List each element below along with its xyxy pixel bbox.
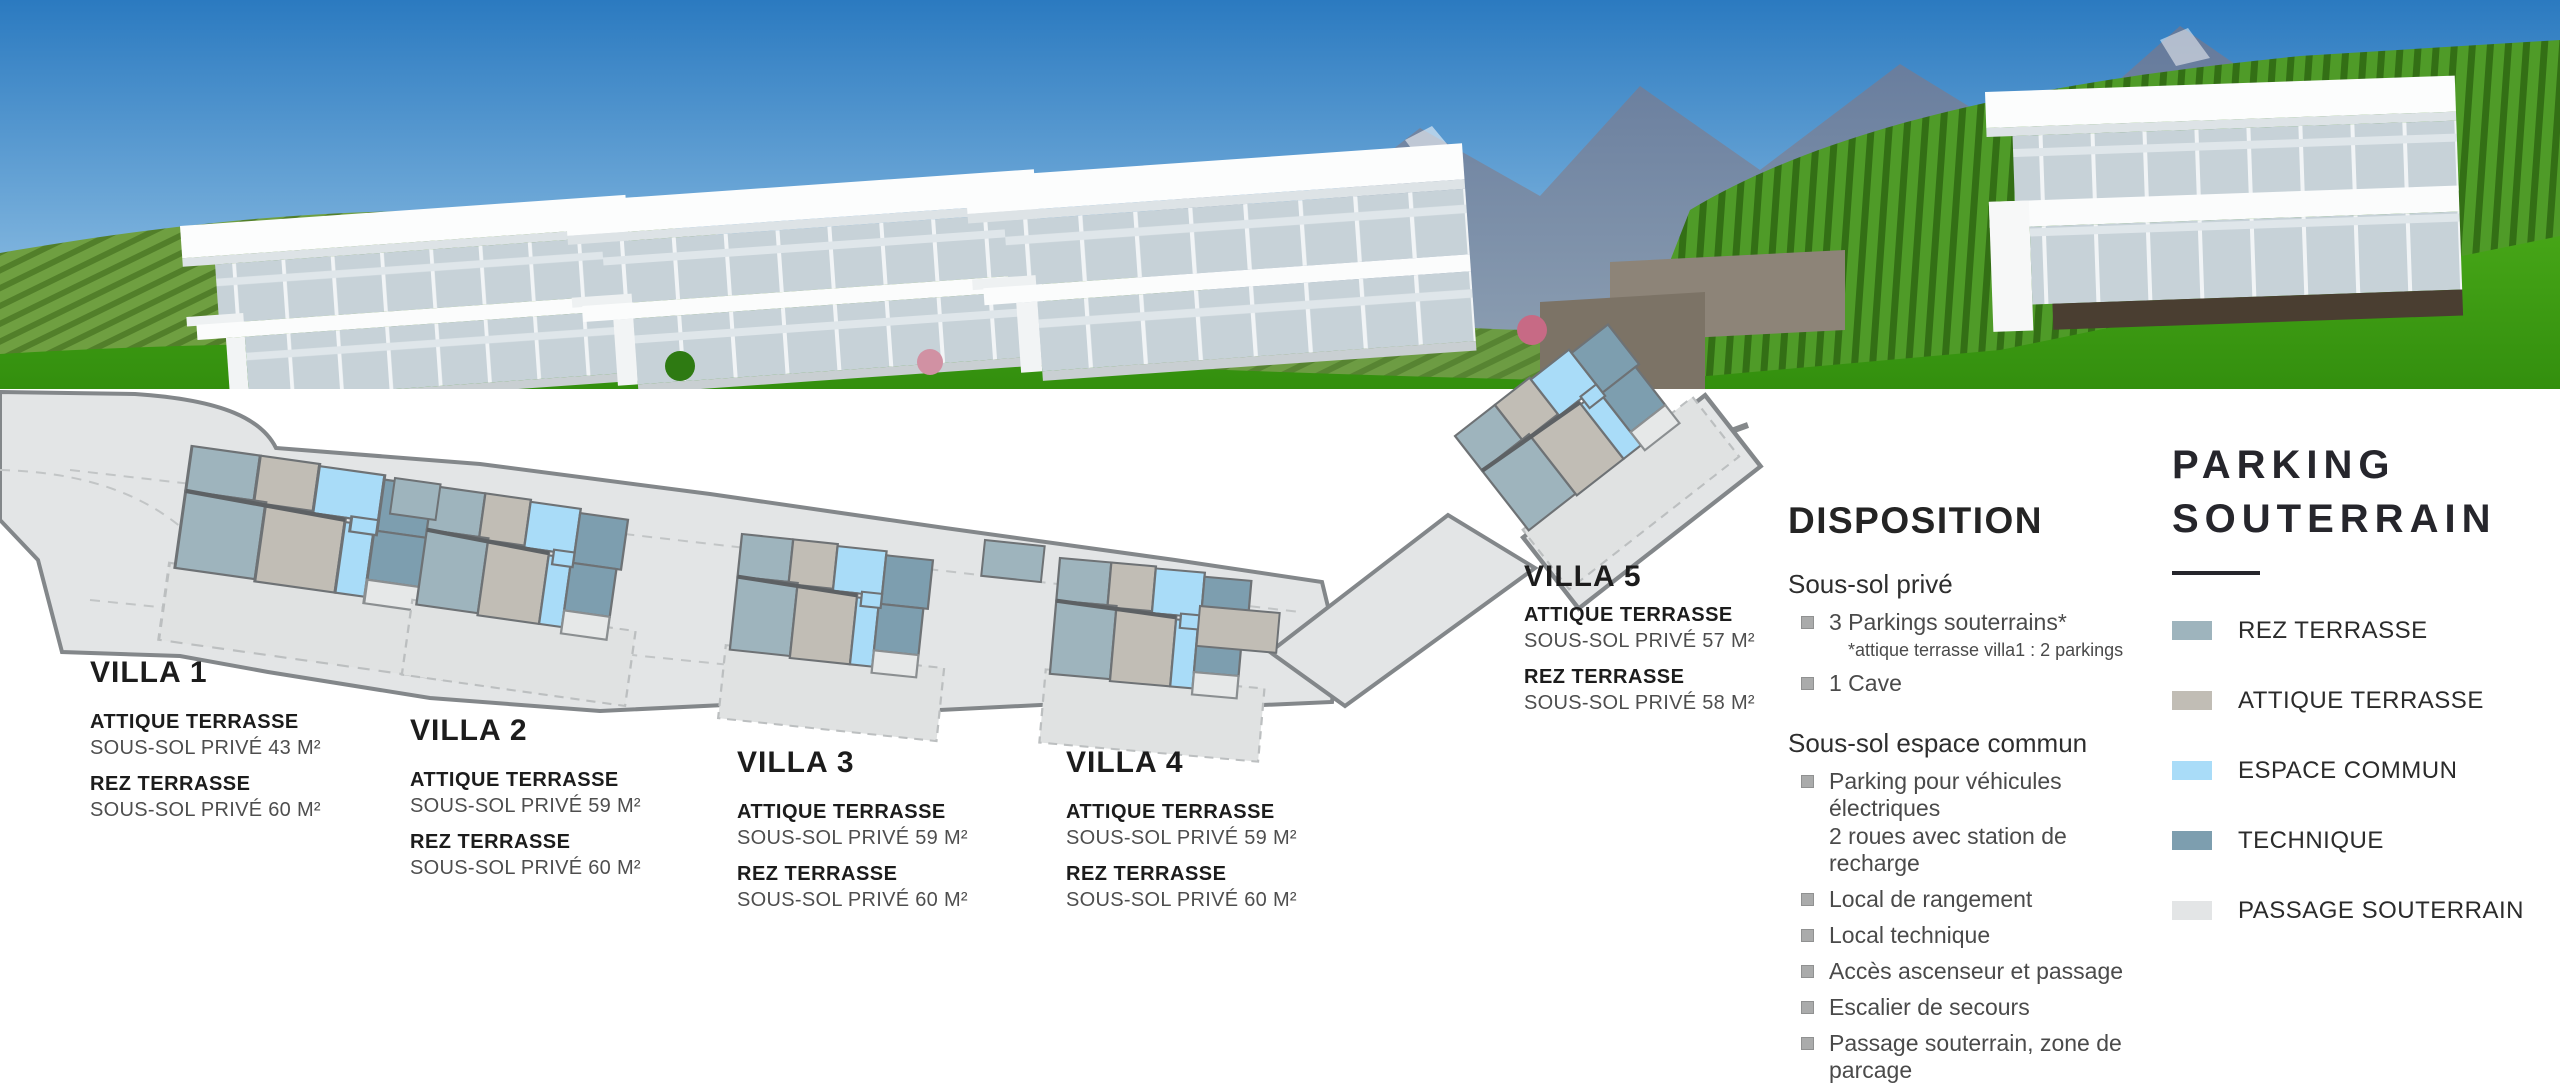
disposition-section: DISPOSITION Sous-sol privé 3 Parkings so… [1788, 500, 2148, 1085]
attique-value: SOUS-SOL PRIVÉ 57 M² [1524, 630, 1755, 653]
bullet-square-icon [1801, 775, 1814, 788]
disposition-title: DISPOSITION [1788, 500, 2148, 542]
legend-item-technique: TECHNIQUE [2172, 827, 2552, 855]
villa-label: VILLA 3 [737, 746, 968, 780]
bullet-square-icon [1801, 616, 1814, 629]
attique-label: ATTIQUE TERRASSE [410, 769, 641, 792]
color-swatch [2172, 761, 2212, 780]
attique-value: SOUS-SOL PRIVÉ 59 M² [410, 795, 641, 818]
villa5-note: VILLA 5 ATTIQUE TERRASSE SOUS-SOL PRIVÉ … [1524, 560, 1755, 715]
villa1-note: VILLA 1 ATTIQUE TERRASSE SOUS-SOL PRIVÉ … [90, 656, 321, 822]
color-swatch [2172, 621, 2212, 640]
villa4-note: VILLA 4 ATTIQUE TERRASSE SOUS-SOL PRIVÉ … [1066, 746, 1297, 912]
list-item: 1 Cave [1788, 670, 2148, 697]
legend-item-passage-souterrain: PASSAGE SOUTERRAIN [2172, 897, 2552, 925]
rez-label: REZ TERRASSE [1066, 863, 1297, 886]
parking-footnote: *attique terrasse villa1 : 2 parkings [1788, 640, 2148, 661]
rez-value: SOUS-SOL PRIVÉ 60 M² [1066, 889, 1297, 912]
bullet-square-icon [1801, 677, 1814, 690]
legend-item-espace-commun: ESPACE COMMUN [2172, 757, 2552, 785]
bullet-square-icon [1801, 893, 1814, 906]
villa3-note: VILLA 3 ATTIQUE TERRASSE SOUS-SOL PRIVÉ … [737, 746, 968, 912]
villa-label: VILLA 4 [1066, 746, 1297, 780]
list-item: Accès ascenseur et passage [1788, 958, 2148, 985]
villa-label: VILLA 5 [1524, 560, 1755, 594]
parking-legend: PARKING SOUTERRAIN REZ TERRASSE ATTIQUE … [2172, 438, 2552, 925]
rez-value: SOUS-SOL PRIVÉ 58 M² [1524, 692, 1755, 715]
list-item: Local de rangement [1788, 886, 2148, 913]
attique-label: ATTIQUE TERRASSE [1524, 604, 1755, 627]
attique-value: SOUS-SOL PRIVÉ 59 M² [1066, 827, 1297, 850]
villa2-note: VILLA 2 ATTIQUE TERRASSE SOUS-SOL PRIVÉ … [410, 714, 641, 880]
list-item: Passage souterrain, zone de parcage [1788, 1030, 2148, 1084]
rez-value: SOUS-SOL PRIVÉ 60 M² [90, 799, 321, 822]
list-item: Local technique [1788, 922, 2148, 949]
color-swatch [2172, 691, 2212, 710]
legend-item-rez-terrasse: REZ TERRASSE [2172, 617, 2552, 645]
attique-label: ATTIQUE TERRASSE [90, 711, 321, 734]
villa-label: VILLA 2 [410, 714, 641, 748]
rez-label: REZ TERRASSE [737, 863, 968, 886]
color-swatch [2172, 901, 2212, 920]
title-underline [2172, 571, 2260, 575]
list-item: Parking pour véhicules électriques 2 rou… [1788, 768, 2148, 877]
espace-commun-heading: Sous-sol espace commun [1788, 728, 2148, 759]
rez-value: SOUS-SOL PRIVÉ 60 M² [737, 889, 968, 912]
legend-item-attique-terrasse: ATTIQUE TERRASSE [2172, 687, 2552, 715]
villa-label: VILLA 1 [90, 656, 321, 690]
legend-title: PARKING SOUTERRAIN [2172, 438, 2552, 547]
villa4-plan [1039, 558, 1274, 762]
rez-label: REZ TERRASSE [1524, 666, 1755, 689]
bullet-square-icon [1801, 1001, 1814, 1014]
rez-label: REZ TERRASSE [90, 773, 321, 796]
rez-label: REZ TERRASSE [410, 831, 641, 854]
attique-value: SOUS-SOL PRIVÉ 59 M² [737, 827, 968, 850]
rez-value: SOUS-SOL PRIVÉ 60 M² [410, 857, 641, 880]
list-item: 3 Parkings souterrains* [1788, 609, 2148, 636]
color-swatch [2172, 831, 2212, 850]
list-item: Escalier de secours [1788, 994, 2148, 1021]
bullet-square-icon [1801, 1037, 1814, 1050]
attique-value: SOUS-SOL PRIVÉ 43 M² [90, 737, 321, 760]
bullet-square-icon [1801, 965, 1814, 978]
bullet-square-icon [1801, 929, 1814, 942]
attique-label: ATTIQUE TERRASSE [737, 801, 968, 824]
sous-sol-prive-heading: Sous-sol privé [1788, 569, 2148, 600]
villa3-plan [718, 534, 956, 742]
attique-label: ATTIQUE TERRASSE [1066, 801, 1297, 824]
